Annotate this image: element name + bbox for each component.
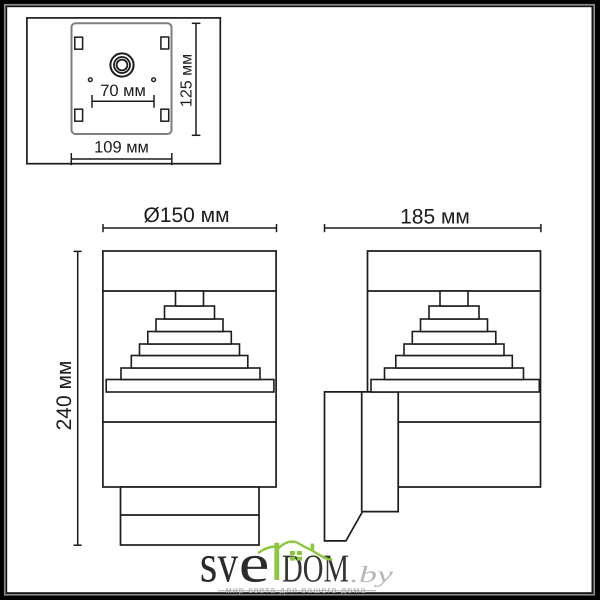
svg-text:.by: .by bbox=[350, 562, 394, 587]
svg-text:240 мм: 240 мм bbox=[53, 361, 76, 431]
svg-text:s: s bbox=[200, 533, 218, 594]
svg-text:109 мм: 109 мм bbox=[94, 139, 149, 157]
svg-text:185 мм: 185 мм bbox=[400, 206, 470, 229]
svg-text:Ø150 мм: Ø150 мм bbox=[143, 204, 229, 227]
svg-text:125 мм: 125 мм bbox=[179, 54, 196, 107]
svg-text:70 мм: 70 мм bbox=[100, 82, 146, 100]
svg-text:мир света для вашего дома: мир света для вашего дома bbox=[226, 585, 367, 595]
